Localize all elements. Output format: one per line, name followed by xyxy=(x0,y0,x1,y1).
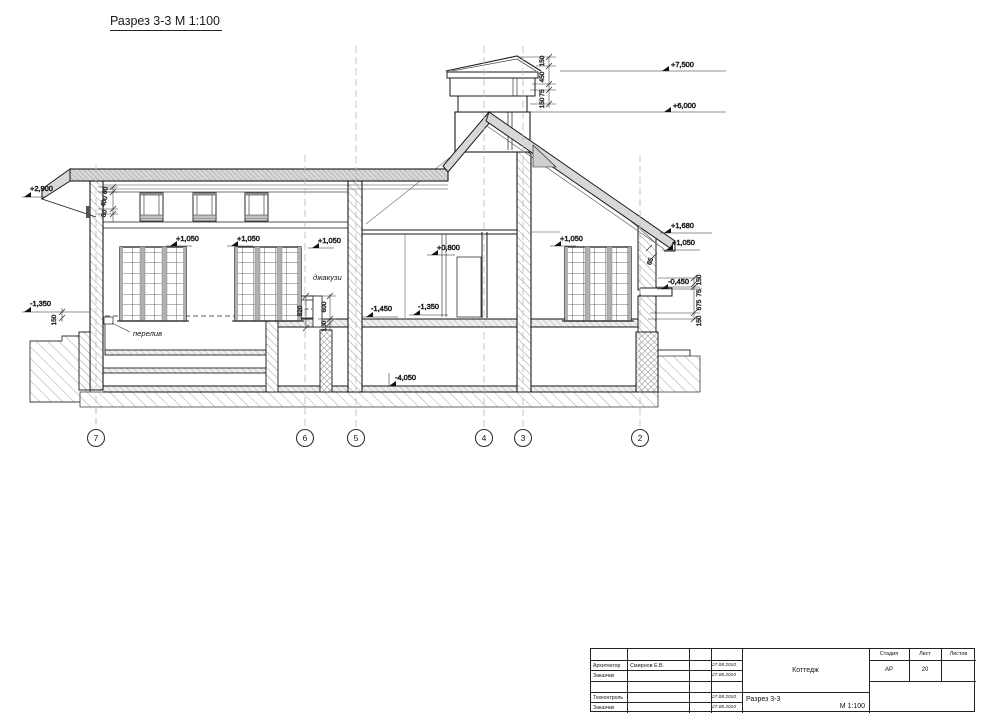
titleblock-line xyxy=(869,681,976,682)
elevation-label: -1,350 xyxy=(418,302,439,311)
elevation-mark: +7,500 xyxy=(560,60,726,71)
elevation-label: +1,050 xyxy=(176,234,199,243)
window-right xyxy=(562,247,634,321)
stage-label: Стадия xyxy=(869,649,909,660)
sheet-number: 20 xyxy=(909,660,941,681)
dim-label: 400 xyxy=(100,195,110,208)
titleblock-line xyxy=(591,681,742,682)
clerestory-windows xyxy=(140,193,268,221)
left-ground-dim: 150 xyxy=(51,308,65,325)
elevation-label: +1,050 xyxy=(318,236,341,245)
dim-label: 675 xyxy=(696,299,703,310)
dim-label: 100 xyxy=(321,320,328,331)
elevation-mark: +0,800 xyxy=(427,243,460,255)
drawing-title: Разрез 3-3 М 1:100 xyxy=(110,14,222,31)
role-label: Техконтроль xyxy=(593,693,626,703)
clerestory-window xyxy=(193,193,216,221)
elevation-mark: +1,050 xyxy=(550,234,583,246)
axis-bubble: 6 xyxy=(297,430,314,447)
project-name: Коттедж xyxy=(742,649,869,692)
stage-value: АР xyxy=(869,660,909,681)
date-value: 27.08.2010 xyxy=(712,661,741,671)
window-left-2 xyxy=(232,247,304,321)
axis-bubble: 5 xyxy=(348,430,365,447)
dim-label: 75 xyxy=(539,89,546,97)
dim-label: 150 xyxy=(51,314,58,325)
architect-name: Смирнов Е.В. xyxy=(630,661,688,671)
elevation-label: +1,050 xyxy=(560,234,583,243)
axis-number: 6 xyxy=(303,433,308,443)
elevation-mark: +1,050 xyxy=(227,234,260,246)
elevation-label: +1,050 xyxy=(672,238,695,247)
elevation-label: +0,800 xyxy=(437,243,460,252)
axis-number: 5 xyxy=(354,433,359,443)
dim-label: 600 xyxy=(321,301,328,312)
elevation-mark: -1,450 xyxy=(362,304,398,317)
sheet-label: Лист xyxy=(909,649,941,660)
dim-label: 75 xyxy=(696,289,703,297)
date-value: 27.08.2010 xyxy=(712,693,741,703)
axis-bubble: 2 xyxy=(632,430,649,447)
dim-label: 150 xyxy=(696,315,703,326)
elevation-mark: -1,350 xyxy=(22,299,90,312)
elevation-mark: +6,000 xyxy=(530,101,726,112)
elevation-label: -1,350 xyxy=(30,299,51,308)
drawing-sheet: Разрез 3-3 М 1:100 xyxy=(0,0,990,728)
dim-label: 150 xyxy=(696,274,703,285)
elevation-label: +6,000 xyxy=(673,101,696,110)
elevation-label: -0,450 xyxy=(668,277,689,286)
clerestory-window xyxy=(140,193,163,221)
role-label: Заказчик xyxy=(593,671,626,681)
dim-label: 450 xyxy=(539,71,546,82)
overflow-leader-line xyxy=(112,323,130,332)
date-value: 27.08.2010 xyxy=(712,703,741,713)
clerestory-window xyxy=(245,193,268,221)
dim-label: 80 xyxy=(100,209,109,218)
role-label: Заказчик xyxy=(593,703,626,713)
role-label: Архитектор xyxy=(593,661,626,671)
axis-bubble: 3 xyxy=(515,430,532,447)
jacuzzi-note: джакузи xyxy=(313,273,343,282)
elevation-label: +1,050 xyxy=(237,234,260,243)
dim-label: 150 xyxy=(539,97,546,108)
scale-value: М 1:100 xyxy=(742,702,865,712)
axis-number: 2 xyxy=(638,433,643,443)
axis-bubbles: 7 6 5 4 3 2 xyxy=(88,430,649,447)
axis-number: 3 xyxy=(521,433,526,443)
date-value: 27.08.2010 xyxy=(712,671,741,681)
elevation-mark: -4,050 xyxy=(385,373,424,386)
axis-bubble: 4 xyxy=(476,430,493,447)
axis-number: 4 xyxy=(482,433,487,443)
elevation-label: -1,450 xyxy=(371,304,392,313)
sheets-label: Листов xyxy=(941,649,976,660)
elevation-mark: +1,680 xyxy=(660,221,712,233)
elevation-label: +1,680 xyxy=(671,221,694,230)
dim-label: 150 xyxy=(539,55,546,66)
elevation-label: +2,900 xyxy=(30,184,53,193)
pool-basin xyxy=(103,316,266,373)
elevation-mark: +1,050 xyxy=(166,234,199,246)
elevation-mark: +1,050 xyxy=(308,236,341,248)
elevation-label: +7,500 xyxy=(671,60,694,69)
elevation-label: -4,050 xyxy=(395,373,416,382)
axis-number: 7 xyxy=(94,433,99,443)
section-drawing: +7,500 +6,000 +2,900 -1,350 +1,050 +1,05… xyxy=(0,0,990,728)
title-block: Архитектор Смирнов Е.В. 27.08.2010 Заказ… xyxy=(590,648,975,712)
dim-label: 820 xyxy=(297,305,304,316)
axis-bubble: 7 xyxy=(88,430,105,447)
overflow-note: перелив xyxy=(133,329,162,338)
elevation-marks: +7,500 +6,000 +2,900 -1,350 +1,050 +1,05… xyxy=(22,60,726,386)
basement-floor-slab xyxy=(103,386,653,392)
window-left-1 xyxy=(117,247,189,321)
